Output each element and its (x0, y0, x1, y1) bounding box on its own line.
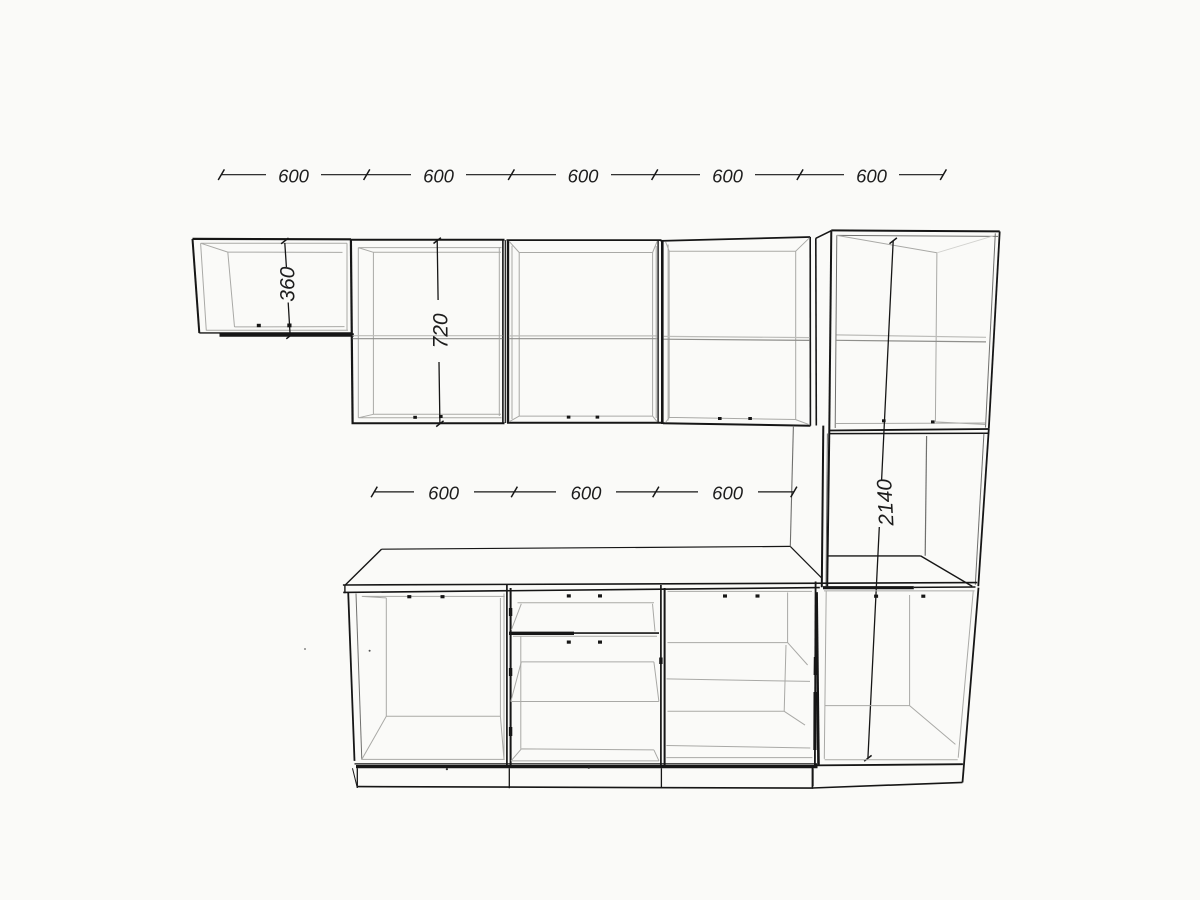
svg-text:600: 600 (712, 483, 744, 504)
svg-text:600: 600 (712, 166, 744, 187)
svg-text:600: 600 (428, 483, 460, 504)
svg-text:600: 600 (278, 166, 310, 187)
svg-text:2140: 2140 (873, 478, 898, 527)
svg-text:720: 720 (430, 313, 453, 348)
svg-text:600: 600 (856, 166, 888, 187)
svg-text:600: 600 (423, 166, 455, 187)
svg-text:360: 360 (277, 266, 300, 301)
svg-text:600: 600 (568, 166, 600, 187)
svg-text:600: 600 (571, 483, 603, 504)
